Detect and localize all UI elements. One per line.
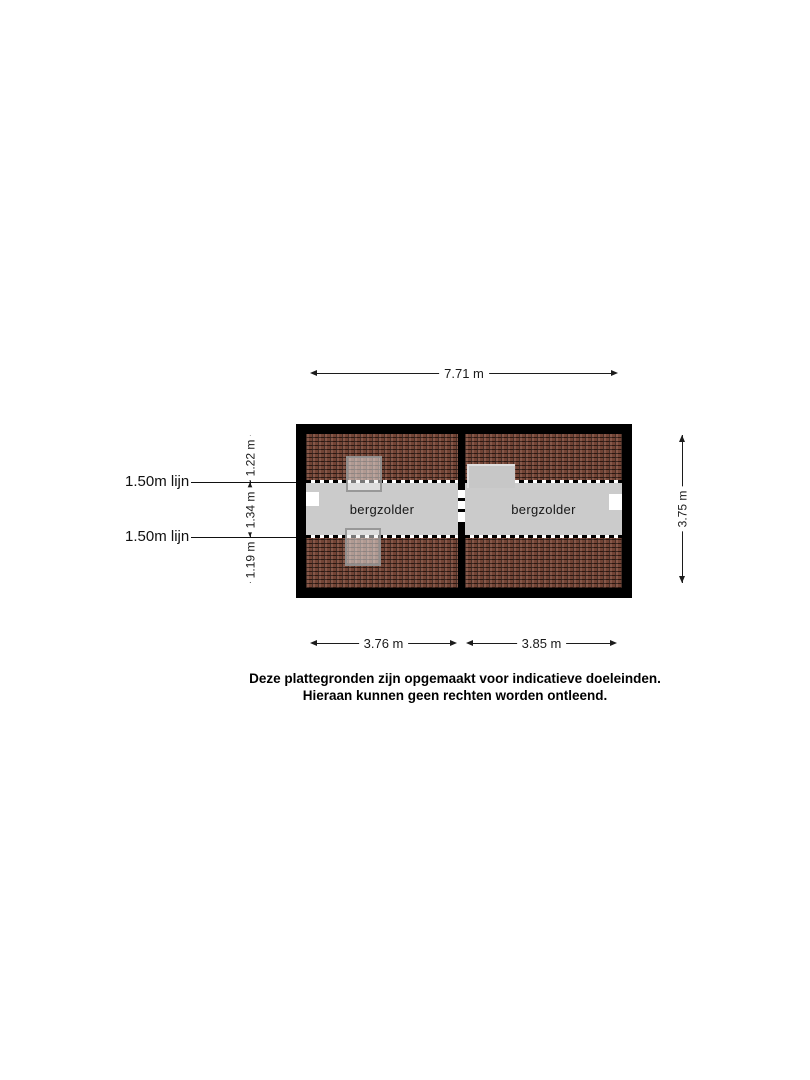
disclaimer-line-2: Hieraan kunnen geen rechten worden ontle…: [249, 687, 661, 704]
height-line-dashed: [465, 535, 622, 538]
dimension-label-right: 3.75 m: [676, 487, 691, 532]
room-left-bergzolder: bergzolder: [306, 434, 458, 588]
height-line-dashed: [306, 480, 458, 483]
height-line-leader-1: 1.50m lijn: [125, 474, 296, 490]
arrow-left-icon: [310, 640, 317, 646]
arrow-right-icon: [610, 640, 617, 646]
roof-slope-top: [306, 434, 458, 482]
disclaimer-text: Deze plattegronden zijn opgemaakt voor i…: [249, 670, 661, 704]
leader-line: [191, 537, 296, 538]
arrow-left-icon: [466, 640, 473, 646]
dimension-label-top: 7.71 m: [439, 366, 489, 381]
arrow-up-icon: [679, 435, 685, 442]
skylight-window: [346, 456, 382, 492]
arrow-left-icon: [310, 370, 317, 376]
height-line-label: 1.50m lijn: [125, 474, 189, 490]
dimension-top-width: 7.71 m: [310, 366, 618, 381]
roof-slope-bottom: [465, 537, 622, 588]
dimension-label-bottom-left: 3.76 m: [359, 636, 409, 651]
dimension-label-bottom-right: 3.85 m: [517, 636, 567, 651]
arrow-down-icon: [679, 576, 685, 583]
opening-dash: [458, 498, 465, 501]
height-line-label: 1.50m lijn: [125, 529, 189, 545]
dimension-label-left-2: 1.34 m: [244, 488, 259, 533]
height-line-leader-2: 1.50m lijn: [125, 529, 296, 545]
arrow-right-icon: [450, 640, 457, 646]
skylight-window: [345, 528, 381, 566]
height-line-dashed: [306, 535, 458, 538]
dormer-window: [467, 464, 515, 488]
dimension-bottom-right: 3.85 m: [466, 636, 617, 651]
room-label: bergzolder: [465, 502, 622, 517]
room-label: bergzolder: [306, 502, 458, 517]
opening-dash: [458, 509, 465, 512]
room-right-bergzolder: bergzolder: [465, 434, 622, 588]
arrow-right-icon: [611, 370, 618, 376]
leader-line: [191, 482, 296, 483]
dimension-bottom-left: 3.76 m: [310, 636, 457, 651]
roof-slope-bottom: [306, 537, 458, 588]
wall-opening: [458, 490, 465, 522]
disclaimer-line-1: Deze plattegronden zijn opgemaakt voor i…: [249, 670, 661, 687]
